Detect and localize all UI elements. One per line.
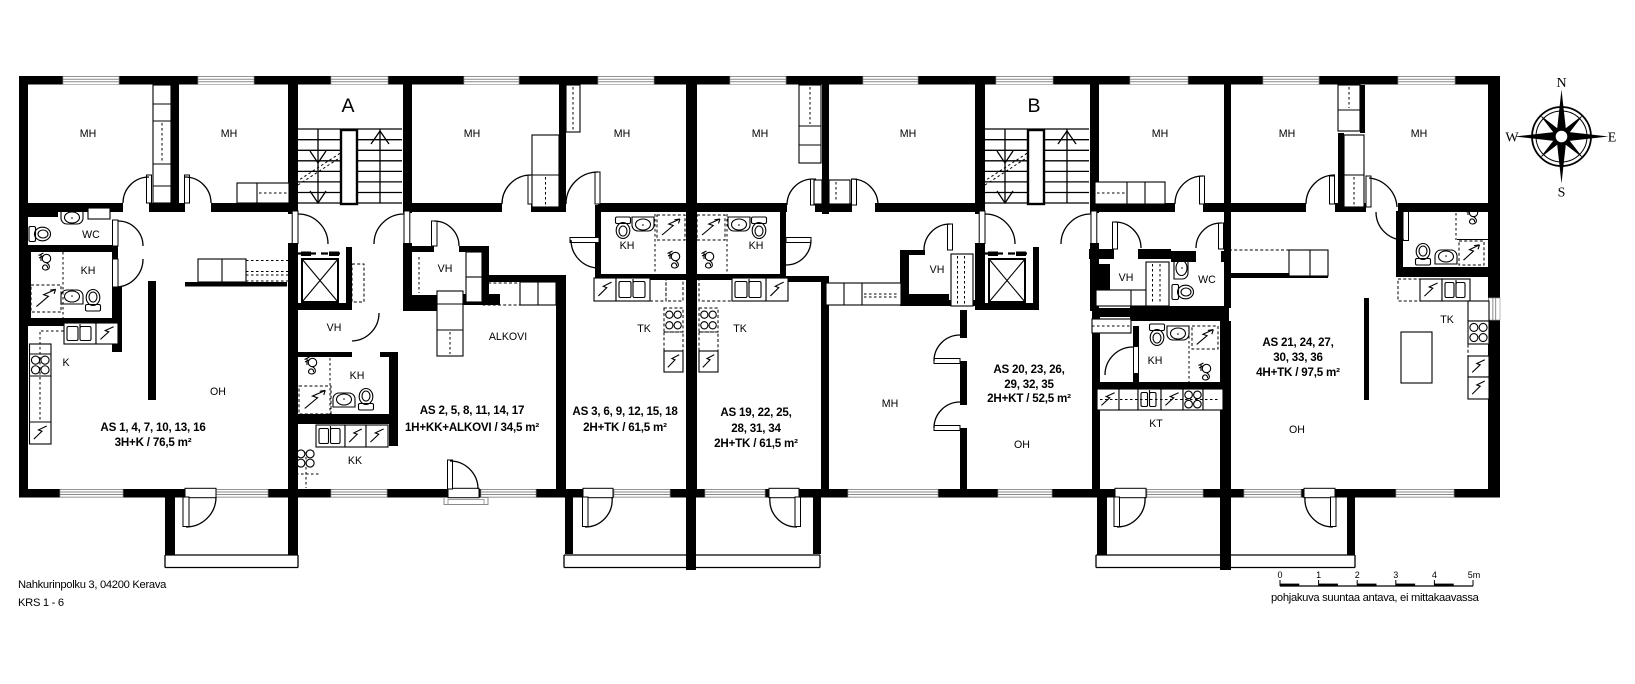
- svg-text:ALKOVI: ALKOVI: [489, 331, 527, 343]
- svg-text:KH: KH: [350, 370, 365, 382]
- svg-text:MH: MH: [221, 128, 237, 140]
- svg-text:KH: KH: [81, 265, 96, 277]
- svg-text:AS 2, 5, 8, 11, 14, 17: AS 2, 5, 8, 11, 14, 17: [420, 404, 525, 417]
- svg-text:KH: KH: [1148, 355, 1163, 367]
- svg-text:TK: TK: [733, 323, 747, 335]
- svg-text:K: K: [62, 357, 69, 369]
- svg-text:0: 0: [1277, 570, 1282, 580]
- svg-text:AS 21, 24, 27,: AS 21, 24, 27,: [1262, 336, 1333, 349]
- svg-text:2: 2: [1355, 570, 1360, 580]
- svg-text:B: B: [1027, 95, 1040, 117]
- svg-text:5m: 5m: [1468, 570, 1481, 580]
- svg-text:4: 4: [1432, 570, 1437, 580]
- svg-text:VH: VH: [438, 263, 453, 275]
- svg-text:pohjakuva suuntaa antava, ei m: pohjakuva suuntaa antava, ei mittakaavas…: [1271, 592, 1480, 604]
- svg-text:AS 19, 22, 25,: AS 19, 22, 25,: [720, 406, 791, 419]
- svg-text:KH: KH: [749, 240, 764, 252]
- svg-text:WC: WC: [1198, 274, 1216, 286]
- svg-text:MH: MH: [614, 128, 630, 140]
- svg-text:KK: KK: [348, 455, 362, 467]
- svg-text:KRS 1 - 6: KRS 1 - 6: [18, 597, 64, 609]
- svg-text:VH: VH: [930, 264, 945, 276]
- svg-text:2H+TK / 61,5 m²: 2H+TK / 61,5 m²: [583, 421, 667, 434]
- svg-text:1: 1: [1316, 570, 1321, 580]
- svg-text:MH: MH: [1411, 128, 1427, 140]
- svg-text:S: S: [1558, 186, 1566, 201]
- svg-text:TK: TK: [1440, 314, 1454, 326]
- svg-text:WC: WC: [82, 229, 100, 241]
- svg-text:1H+KK+ALKOVI / 34,5 m²: 1H+KK+ALKOVI / 34,5 m²: [405, 421, 539, 434]
- svg-text:E: E: [1608, 131, 1617, 146]
- svg-text:AS 3, 6, 9, 12, 15, 18: AS 3, 6, 9, 12, 15, 18: [572, 405, 678, 418]
- svg-text:3H+K / 76,5 m²: 3H+K / 76,5 m²: [115, 436, 192, 449]
- svg-text:TK: TK: [637, 323, 651, 335]
- svg-text:2H+TK / 61,5 m²: 2H+TK / 61,5 m²: [714, 437, 798, 450]
- svg-text:KH: KH: [620, 240, 635, 252]
- svg-text:MH: MH: [882, 398, 898, 410]
- svg-text:MH: MH: [80, 128, 96, 140]
- svg-text:4H+TK / 97,5 m²: 4H+TK / 97,5 m²: [1256, 366, 1340, 379]
- svg-text:MH: MH: [1152, 128, 1168, 140]
- svg-text:MH: MH: [1279, 128, 1295, 140]
- svg-text:MH: MH: [752, 128, 768, 140]
- svg-text:AS 1, 4, 7, 10, 13, 16: AS 1, 4, 7, 10, 13, 16: [100, 421, 206, 434]
- svg-text:Nahkurinpolku 3, 04200 Kerava: Nahkurinpolku 3, 04200 Kerava: [18, 579, 167, 591]
- svg-text:N: N: [1556, 76, 1566, 91]
- svg-text:KT: KT: [1149, 418, 1163, 430]
- svg-text:28, 31, 34: 28, 31, 34: [731, 422, 781, 435]
- svg-text:30, 33, 36: 30, 33, 36: [1273, 351, 1323, 364]
- svg-text:W: W: [1505, 131, 1519, 146]
- svg-text:VH: VH: [327, 322, 342, 334]
- svg-text:AS 20, 23, 26,: AS 20, 23, 26,: [993, 363, 1064, 376]
- svg-text:2H+KT / 52,5 m²: 2H+KT / 52,5 m²: [987, 392, 1071, 405]
- svg-text:29, 32, 35: 29, 32, 35: [1004, 378, 1054, 391]
- svg-text:MH: MH: [464, 128, 480, 140]
- svg-text:OH: OH: [210, 386, 226, 398]
- svg-text:MH: MH: [900, 128, 916, 140]
- svg-text:VH: VH: [1119, 272, 1134, 284]
- svg-text:OH: OH: [1289, 424, 1305, 436]
- svg-text:3: 3: [1393, 570, 1398, 580]
- svg-text:A: A: [341, 95, 354, 117]
- svg-text:OH: OH: [1014, 439, 1030, 451]
